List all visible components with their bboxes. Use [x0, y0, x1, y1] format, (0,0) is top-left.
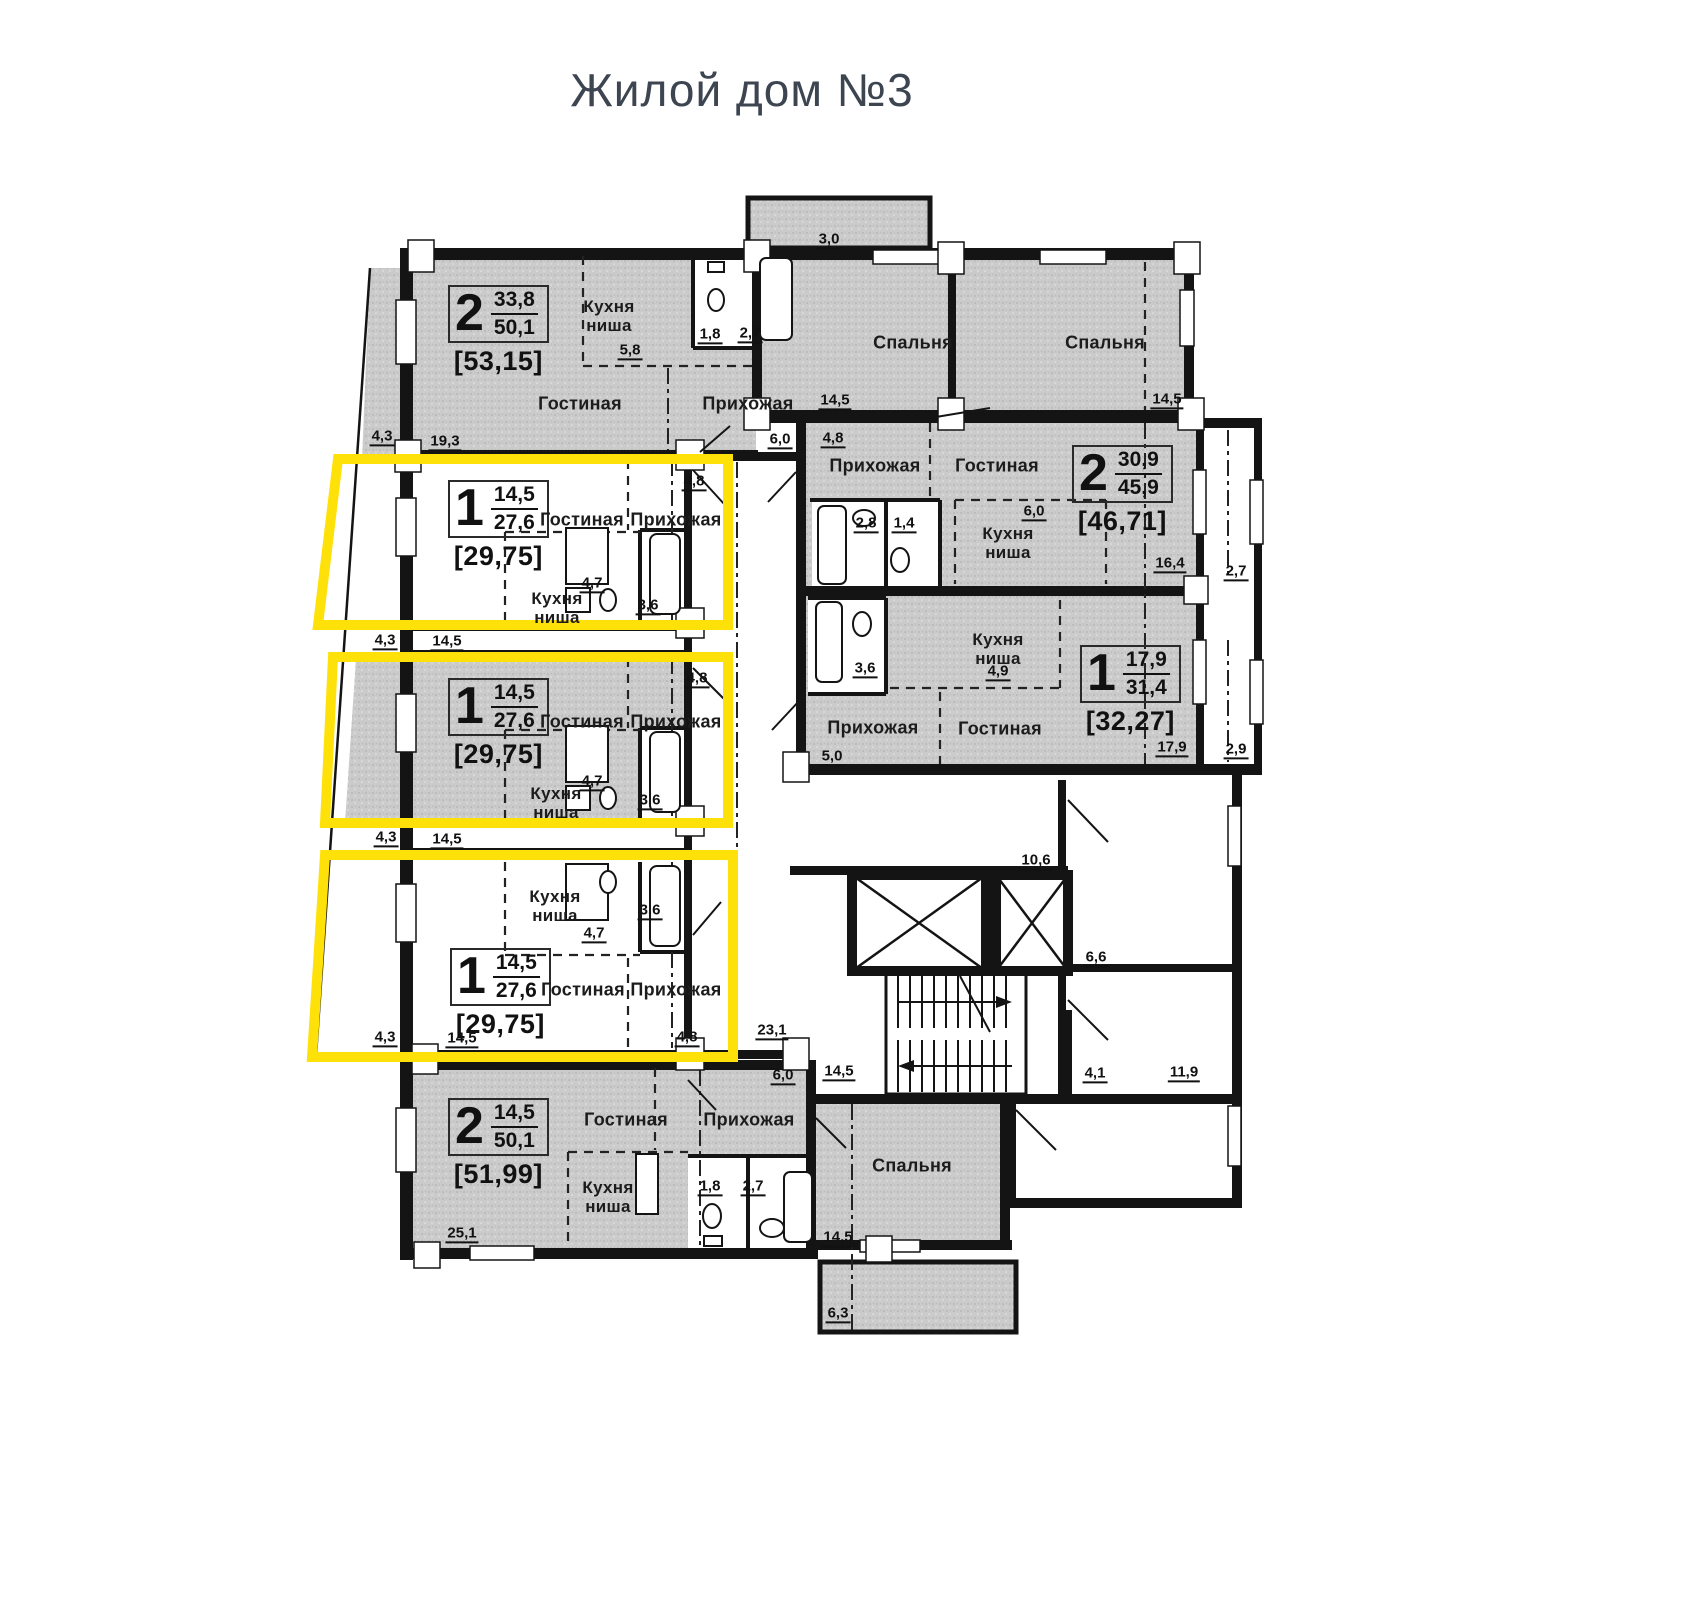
stamp-area: 31,4: [1123, 675, 1170, 700]
dim-label: 14,5: [818, 391, 851, 410]
room-label-hall: Прихожая: [702, 394, 793, 415]
room-label-hall: Прихожая: [630, 510, 721, 531]
stamp-total-area: [46,71]: [1078, 506, 1167, 537]
room-label-living: Гостиная: [540, 712, 624, 733]
dim-label: 14,5: [445, 1029, 478, 1048]
dim-label: 5,8: [618, 341, 643, 360]
room-label-living: Гостиная: [955, 456, 1039, 477]
dim-label: 3,6: [638, 791, 663, 810]
stamp-area: 50,1: [491, 315, 538, 340]
room-label-bedroom: Спальня: [872, 1156, 952, 1177]
stamp-rooms-count: 2: [455, 290, 484, 338]
stamp-living-area: 30,9: [1115, 448, 1162, 475]
stamp-total-area: [29,75]: [454, 541, 543, 572]
page-title: Жилой дом №3: [570, 63, 913, 117]
stamp-living-area: 14,5: [491, 681, 538, 708]
dim-label: 4,3: [370, 427, 395, 446]
dim-label: 6,6: [1084, 948, 1109, 967]
dim-label: 19,3: [428, 432, 461, 451]
stamp-rooms-count: 1: [455, 683, 484, 731]
dim-label: 4,7: [580, 574, 605, 593]
room-label-kitchen-niche: Кухня ниша: [517, 887, 593, 925]
stamp-rooms-count: 1: [1087, 650, 1116, 698]
room-label-hall: Прихожая: [630, 980, 721, 1001]
stamp-area: 50,1: [491, 1128, 538, 1153]
dim-label: 4,3: [373, 631, 398, 650]
dim-label: 2,7: [738, 324, 763, 343]
room-label-kitchen-niche: Кухня ниша: [570, 1178, 646, 1216]
stamp-total-area: [51,99]: [454, 1159, 543, 1190]
room-label-hall: Прихожая: [703, 1110, 794, 1131]
stamp-total-area: [29,75]: [454, 739, 543, 770]
dim-label: 2,9: [1224, 740, 1249, 759]
stamp-living-area: 14,5: [491, 1101, 538, 1128]
room-label-living: Гостиная: [584, 1110, 668, 1131]
room-label-kitchen-niche: Кухня ниша: [970, 524, 1046, 562]
room-label-living: Гостиная: [538, 394, 622, 415]
dim-label: 6,0: [771, 1066, 796, 1085]
dim-label: 23,1: [755, 1021, 788, 1040]
dim-label: 6,0: [1022, 502, 1047, 521]
dim-label: 14,5: [821, 1228, 854, 1247]
dim-label: 4,8: [675, 1028, 700, 1047]
dim-label: 14,5: [822, 1062, 855, 1081]
apartment-stamp-1-yellow-3: 1 14,527,6 [29,75]: [450, 948, 551, 1040]
room-label-living: Гостиная: [958, 719, 1042, 740]
dim-label: 4,8: [821, 429, 846, 448]
stamp-area: 27,6: [491, 708, 538, 733]
dim-label: 14,5: [430, 830, 463, 849]
stamp-total-area: [53,15]: [454, 346, 543, 377]
dim-label: 3,6: [636, 596, 661, 615]
apartment-stamp-1-yellow-1: 1 14,527,6 [29,75]: [448, 480, 549, 572]
floorplan-drawing: [0, 0, 1699, 1623]
dim-label: 1,4: [892, 514, 917, 533]
room-label-hall: Прихожая: [829, 456, 920, 477]
stamp-area: 45,9: [1115, 475, 1162, 500]
room-label-living: Гостиная: [540, 510, 624, 531]
room-label-bedroom: Спальня: [1065, 333, 1145, 354]
dim-label: 2,8: [854, 514, 879, 533]
room-label-hall: Прихожая: [827, 718, 918, 739]
elevator-shafts: [852, 875, 1068, 971]
stamp-total-area: [32,27]: [1086, 706, 1175, 737]
dim-label: 3,0: [817, 230, 842, 249]
dim-label: 6,3: [826, 1304, 851, 1323]
dim-label: 2,7: [741, 1177, 766, 1196]
dim-label: 4,3: [374, 828, 399, 847]
stamp-rooms-count: 2: [1079, 450, 1108, 498]
apartment-stamp-1-yellow-2: 1 14,527,6 [29,75]: [448, 678, 549, 770]
stamp-rooms-count: 2: [455, 1103, 484, 1151]
dim-label: 25,1: [445, 1224, 478, 1243]
dim-label: 10,6: [1019, 851, 1052, 870]
stamp-living-area: 14,5: [493, 951, 540, 978]
dim-label: 4,1: [1083, 1064, 1108, 1083]
stamp-rooms-count: 1: [457, 953, 486, 1001]
dim-label: 4,9: [986, 662, 1011, 681]
dim-label: 14,5: [430, 632, 463, 651]
stamp-area: 27,6: [491, 510, 538, 535]
dim-label: 16,4: [1153, 554, 1186, 573]
dim-label: 4,3: [373, 1028, 398, 1047]
dim-label: 1,8: [698, 325, 723, 344]
stamp-area: 27,6: [493, 978, 540, 1003]
dim-label: 4,8: [682, 472, 707, 491]
dim-label: 4,7: [580, 772, 605, 791]
dim-label: 1,8: [698, 1177, 723, 1196]
dim-label: 4,8: [685, 669, 710, 688]
dim-label: 6,0: [768, 430, 793, 449]
apartment-stamp-2-bottom: 2 14,550,1 [51,99]: [448, 1098, 549, 1190]
stamp-living-area: 14,5: [491, 483, 538, 510]
dim-label: 2,7: [1224, 562, 1249, 581]
room-label-hall: Прихожая: [630, 712, 721, 733]
stamp-living-area: 33,8: [491, 288, 538, 315]
room-label-kitchen-niche: Кухня ниша: [571, 297, 647, 335]
room-label-bedroom: Спальня: [873, 333, 953, 354]
stamp-rooms-count: 1: [455, 485, 484, 533]
dim-label: 11,9: [1168, 1063, 1200, 1082]
apartment-stamp-1-right: 1 17,931,4 [32,27]: [1080, 645, 1181, 737]
room-label-kitchen-niche: Кухня ниша: [519, 589, 595, 627]
stamp-living-area: 17,9: [1123, 648, 1170, 675]
apartment-stamp-2-topleft: 2 33,850,1 [53,15]: [448, 285, 549, 377]
stairs: [898, 976, 1012, 1092]
dim-label: 14,5: [1150, 390, 1183, 409]
dim-label: 17,9: [1155, 738, 1188, 757]
dim-label: 3,6: [853, 659, 878, 678]
dim-label: 3,6: [638, 901, 663, 920]
apartment-stamp-2-right: 2 30,945,9 [46,71]: [1072, 445, 1173, 537]
floorplan-page: Жилой дом №3 2 33,850,1 [53,15] 1 14,527…: [0, 0, 1699, 1623]
room-label-living: Гостиная: [541, 980, 625, 1001]
dim-label: 4,7: [582, 924, 607, 943]
dim-label: 5,0: [820, 747, 845, 766]
